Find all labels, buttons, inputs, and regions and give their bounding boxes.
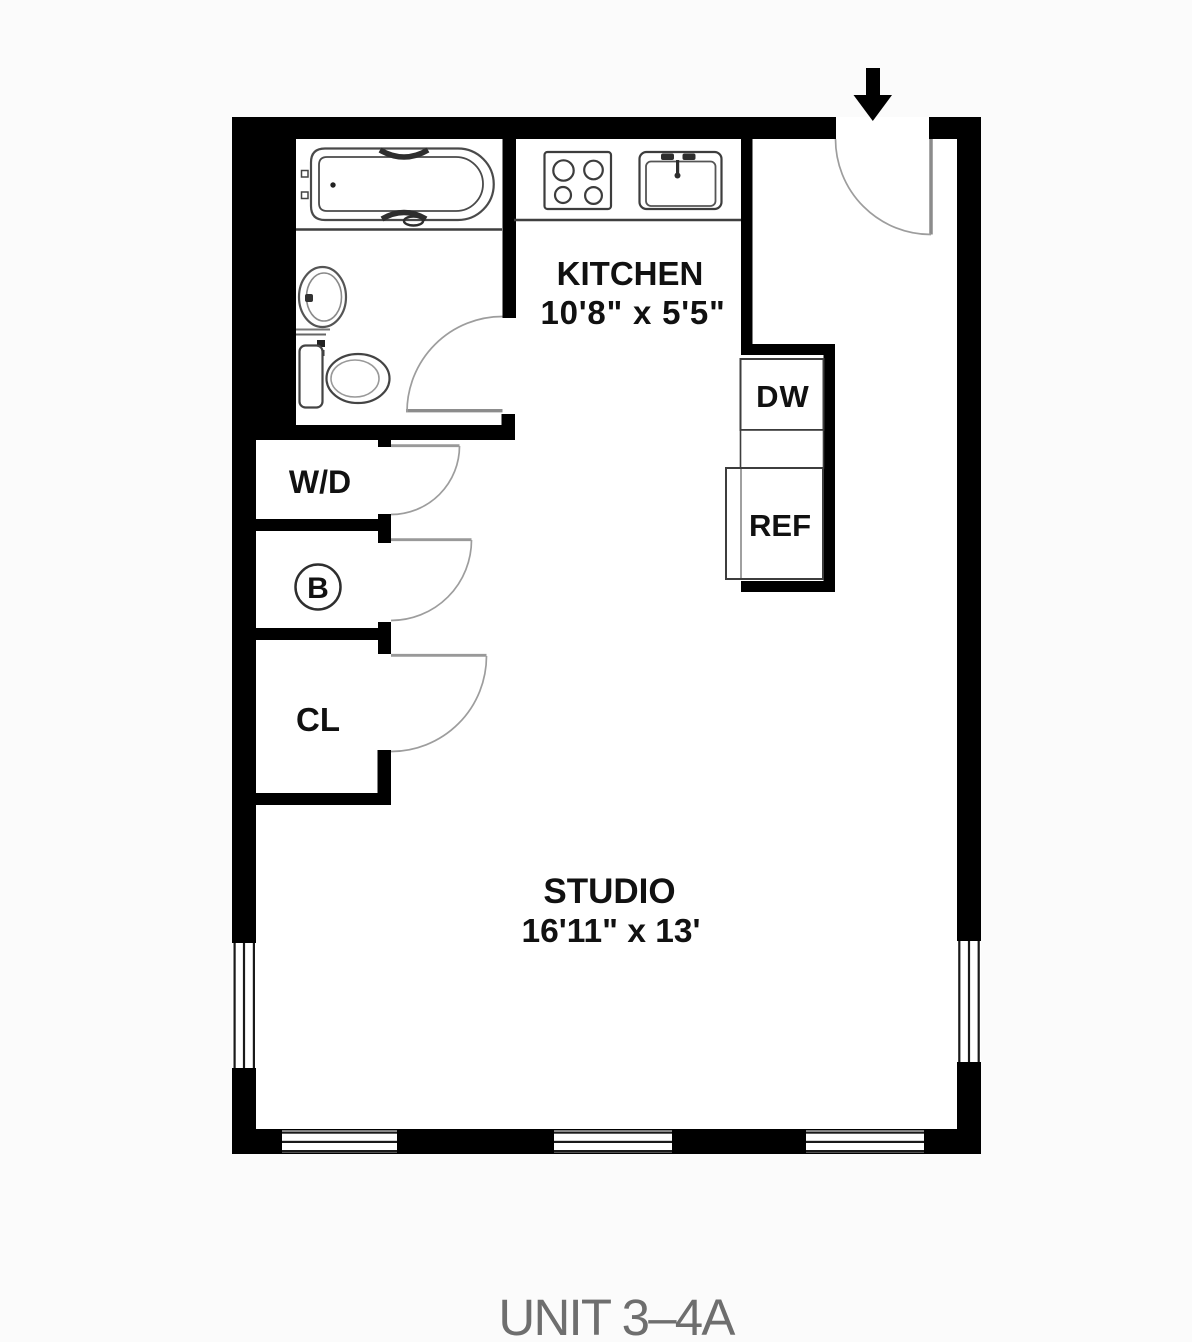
svg-text:DW: DW	[756, 379, 810, 414]
svg-text:KITCHEN: KITCHEN	[557, 255, 704, 292]
svg-text:B: B	[307, 572, 329, 605]
svg-text:STUDIO: STUDIO	[543, 872, 675, 911]
svg-text:REF: REF	[749, 508, 811, 543]
svg-text:UNIT 3–4A: UNIT 3–4A	[498, 1289, 735, 1342]
svg-text:CL: CL	[296, 701, 340, 738]
svg-text:10'8" x 5'5": 10'8" x 5'5"	[540, 294, 725, 331]
svg-text:W/D: W/D	[289, 464, 351, 500]
svg-text:16'11" x 13': 16'11" x 13'	[522, 913, 701, 950]
